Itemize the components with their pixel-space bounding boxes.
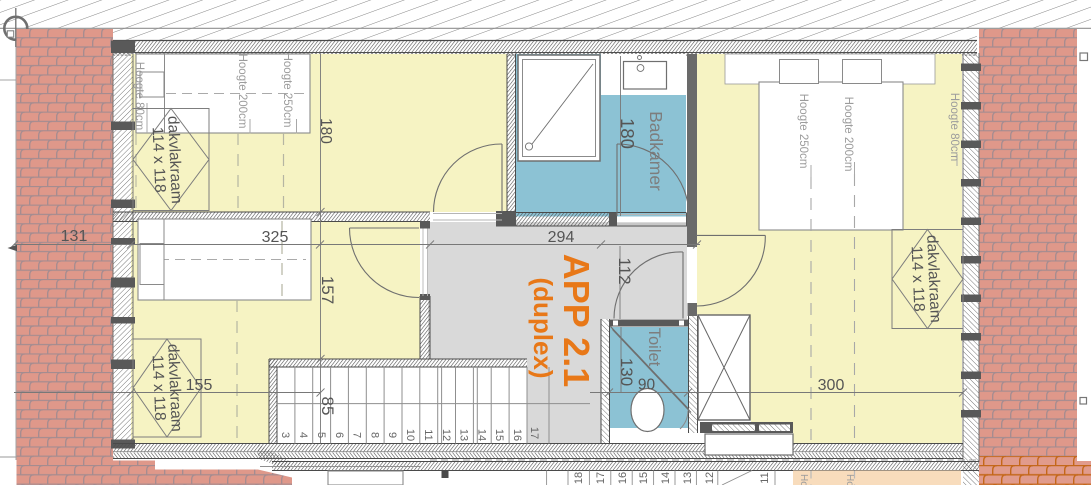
svg-text:16: 16 (511, 429, 523, 441)
svg-text:11: 11 (759, 472, 771, 483)
svg-text:18: 18 (573, 472, 585, 484)
svg-text:300: 300 (818, 377, 845, 394)
svg-text:17: 17 (528, 427, 540, 439)
svg-text:13: 13 (458, 429, 470, 441)
svg-text:Hoogte 200cm: Hoogte 200cm (842, 97, 854, 172)
svg-text:Hoogte 80cm: Hoogte 80cm (948, 93, 960, 161)
svg-text:17: 17 (595, 472, 607, 484)
svg-text:11: 11 (422, 429, 434, 440)
svg-text:114 x 118: 114 x 118 (149, 355, 169, 421)
svg-text:155: 155 (186, 377, 213, 394)
svg-text:8: 8 (369, 432, 381, 438)
svg-text:9: 9 (386, 432, 398, 438)
svg-text:131: 131 (61, 228, 88, 245)
svg-text:Hoogte 200cm: Hoogte 200cm (236, 54, 248, 129)
svg-text:15: 15 (493, 429, 505, 441)
svg-text:294: 294 (548, 229, 575, 246)
svg-text:85: 85 (318, 397, 337, 416)
svg-text:Badkamer: Badkamer (646, 111, 666, 191)
svg-text:14: 14 (476, 429, 488, 441)
svg-text:180: 180 (617, 118, 638, 149)
svg-text:Hoogte: Hoogte (844, 474, 855, 485)
svg-text:7: 7 (351, 432, 363, 438)
svg-text:180: 180 (317, 118, 334, 144)
svg-text:Toilet: Toilet (645, 328, 663, 367)
svg-text:90: 90 (638, 377, 656, 394)
svg-text:6: 6 (333, 432, 345, 438)
svg-text:13: 13 (682, 472, 694, 484)
svg-text:Hoogte: Hoogte (798, 474, 809, 485)
svg-text:114 x 118: 114 x 118 (908, 246, 928, 312)
svg-text:12: 12 (440, 429, 452, 441)
svg-text:16: 16 (617, 472, 629, 484)
svg-text:Hoogte 250cm: Hoogte 250cm (797, 94, 809, 169)
svg-text:3: 3 (279, 432, 291, 438)
svg-text:APP 2.1: APP 2.1 (556, 254, 597, 387)
svg-text:15: 15 (638, 472, 650, 484)
svg-text:130: 130 (617, 358, 636, 386)
svg-text:114 x 118: 114 x 118 (149, 127, 169, 193)
svg-text:157: 157 (318, 276, 337, 304)
svg-text:325: 325 (262, 229, 289, 246)
svg-text:112: 112 (615, 257, 634, 284)
svg-text:Hoogte 250cm: Hoogte 250cm (281, 53, 293, 128)
svg-text:4: 4 (297, 432, 309, 438)
svg-text:5: 5 (315, 432, 327, 438)
svg-text:(duplex): (duplex) (528, 277, 558, 378)
svg-text:Hoogte 80cm: Hoogte 80cm (133, 62, 145, 130)
svg-text:12: 12 (704, 472, 716, 484)
svg-text:10: 10 (404, 429, 416, 441)
svg-text:14: 14 (660, 472, 672, 484)
